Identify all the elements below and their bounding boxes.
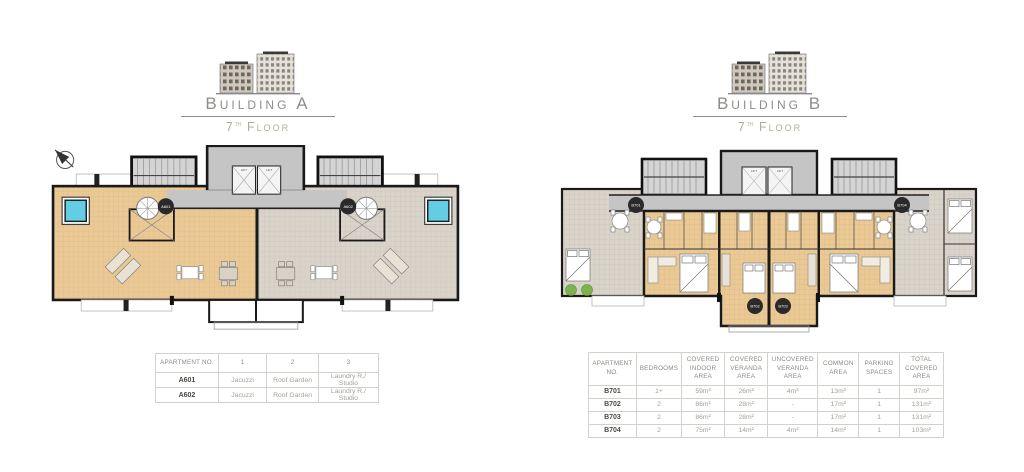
apartment-badge-b703: B703 [775,298,791,314]
building-b-titleblock: Building B 7th Floor [675,95,865,134]
building-b-apartment-table: Apartment No. Bedrooms Covered Indoor Ar… [588,352,944,438]
cell: B704 [589,424,637,437]
floorplan-sheet: Building A 7th Floor [0,0,1024,472]
spiral-stair-left [137,197,159,219]
lift-label: LIFT [241,168,247,172]
table-header-row: Apartment No. Bedrooms Covered Indoor Ar… [589,353,944,386]
cell: 1 [859,385,899,398]
double-bed [773,263,795,293]
badge-label: A602 [343,204,353,209]
apartment-badge-b704: B704 [894,197,910,213]
badge-label: B704 [897,203,907,208]
col-3: 3 [318,354,378,373]
cell: 1+ [636,385,681,398]
cell: 28m² [725,411,768,424]
cell: - [768,398,818,411]
cell: 1 [859,411,899,424]
cell: 17m² [818,398,859,411]
building-b-floorplan: LIFT LIFT [553,149,985,339]
floor-word: Floor [247,120,290,134]
col-2: 2 [267,354,319,373]
cell: 26m² [725,385,768,398]
round-dining-table [611,210,629,232]
apartment-badge-b701: B701 [628,197,644,213]
badge-label: B703 [778,304,788,309]
table-header-row: Apartment No. 1 2 3 [156,354,379,373]
building-a-titleblock: Building A 7th Floor [163,95,353,134]
col-1: 1 [218,354,266,373]
col-apartment-no: Apartment No. [589,353,637,386]
apartment-badge-a601: A601 [158,198,174,214]
cell: 14m² [818,424,859,437]
col-uncovered-veranda: Uncovered Veranda Area [768,353,818,386]
title-divider [693,116,847,117]
floor-suffix: th [235,121,242,128]
cell: - [768,411,818,424]
col-total-covered: Total Covered Area [899,353,943,386]
jacuzzi-right [425,197,452,224]
table-row: B702 2 86m² 28m² - 17m² 1 131m² [589,398,944,411]
north-arrow-icon [55,150,74,169]
col-parking: Parking Spaces [859,353,899,386]
building-a-apartment-table: Apartment No. 1 2 3 A601 Jacuzzi Roof Ga… [155,353,379,403]
stairwell-left [642,159,706,195]
lift-shaft-right: LIFT [768,167,792,195]
cell: 1 [859,398,899,411]
cell: Roof Garden [267,388,319,403]
lift-shaft-left: LIFT [742,167,766,195]
building-a-title: Building A [163,95,353,112]
cell: 13m² [818,385,859,398]
double-bed [948,257,972,291]
title-divider [181,116,335,117]
round-dining-table [909,210,927,232]
lift-label: LIFT [751,169,757,173]
badge-label: A601 [161,204,171,209]
cell: B702 [589,398,637,411]
table-row: A601 Jacuzzi Roof Garden Laundry R./ Stu… [156,373,379,388]
cell: 86m² [682,398,725,411]
col-apartment-no: Apartment No. [156,354,219,373]
cell: Laundry R./ Studio [318,388,378,403]
cell: 4m² [768,385,818,398]
cell: B701 [589,385,637,398]
col-common-area: Common Area [818,353,859,386]
table-row: B703 2 86m² 28m² - 17m² 1 131m² [589,411,944,424]
cell: 4m² [768,424,818,437]
lift-label: LIFT [266,168,272,172]
cell: 103m² [899,424,943,437]
col-covered-indoor: Covered Indoor Area [682,353,725,386]
floor-suffix: th [747,121,754,128]
cell: A602 [156,388,219,403]
building-b-floor: 7th Floor [675,120,865,134]
jacuzzi-left [62,197,89,224]
badge-label: B701 [631,203,641,208]
cell: 131m² [899,398,943,411]
double-bed [948,199,972,233]
building-a-floor: 7th Floor [163,120,353,134]
floor-number: 7 [738,120,747,134]
cell: 2 [636,424,681,437]
cell: 1 [859,424,899,437]
cell: B703 [589,411,637,424]
building-b-title: Building B [675,95,865,112]
cell: 75m² [682,424,725,437]
building-b-illustration [728,50,812,96]
cell: 17m² [818,411,859,424]
double-bed [830,254,858,292]
cell: Jacuzzi [218,388,266,403]
cell: 14m² [725,424,768,437]
cell: Roof Garden [267,373,319,388]
floor-word: Floor [759,120,802,134]
cell: 28m² [725,398,768,411]
cell: 2 [636,398,681,411]
double-bed [566,249,590,281]
cell: 131m² [899,411,943,424]
cell: A601 [156,373,219,388]
cell: 97m² [899,385,943,398]
double-bed [743,263,765,293]
table-row: B701 1+ 59m² 26m² 4m² 13m² 1 97m² [589,385,944,398]
double-bed [680,254,708,292]
apartment-badge-a602: A602 [340,198,356,214]
lift-shaft-left: LIFT [232,166,255,194]
table-row: B704 2 75m² 14m² 4m² 14m² 1 103m² [589,424,944,437]
col-bedrooms: Bedrooms [636,353,681,386]
lift-shaft-right: LIFT [258,166,281,194]
stairwell-right [832,159,896,195]
apartment-badge-b702: B702 [747,298,763,314]
floor-number: 7 [226,120,235,134]
cell: 2 [636,411,681,424]
table-row: A602 Jacuzzi Roof Garden Laundry R./ Stu… [156,388,379,403]
building-a-floorplan: LIFT LIFT [48,145,466,333]
cell: Jacuzzi [218,373,266,388]
col-covered-veranda: Covered Veranda Area [725,353,768,386]
cell: 86m² [682,411,725,424]
lift-label: LIFT [777,169,783,173]
cell: 59m² [682,385,725,398]
spiral-stair-right [355,197,377,219]
badge-label: B702 [750,304,760,309]
cell: Laundry R./ Studio [318,373,378,388]
building-a-illustration [216,50,300,96]
